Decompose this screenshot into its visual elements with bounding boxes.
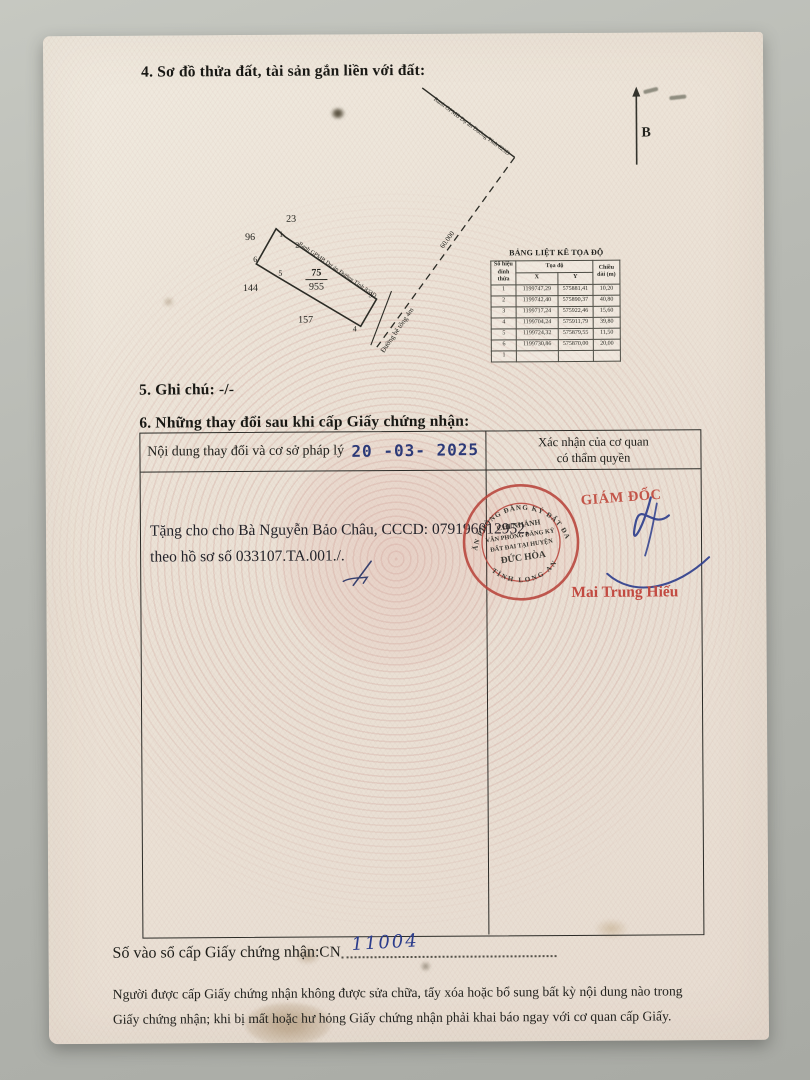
- cell-len: 15,60: [593, 306, 620, 317]
- cell-y: [558, 350, 594, 361]
- cell-x: 1199704,24: [516, 317, 557, 328]
- coordinate-table: Số hiệu đỉnh thửa Tọa độ Chiều dài (m) X…: [490, 260, 621, 362]
- registry-dotted-line: 11004: [341, 941, 556, 958]
- cell-x: 1199742,40: [516, 295, 557, 306]
- ink-smudge: [669, 94, 686, 100]
- changes-header-label: Nội dung thay đổi và cơ sở pháp lý: [147, 443, 344, 460]
- changes-table-header: Nội dung thay đổi và cơ sở pháp lý 20 -0…: [140, 430, 700, 472]
- cell-len: 11,50: [593, 328, 620, 339]
- north-arrow: B: [621, 84, 666, 170]
- road-label: Đường bê tông 4m: [379, 306, 416, 354]
- warning-line1: Người được cấp Giấy chứng nhận không đượ…: [113, 978, 683, 1006]
- neighbor-parcel-144: 144: [243, 283, 258, 294]
- registry-number-handwritten: 11004: [351, 930, 419, 955]
- photo-of-land-certificate-page: 4. Sơ đồ thửa đất, tài sản gắn liền với …: [0, 0, 810, 1080]
- col-coord-header: Tọa độ: [516, 260, 593, 272]
- registry-code: CN: [319, 944, 341, 960]
- confirm-header-line2: có thẩm quyền: [486, 449, 700, 467]
- cell-len: 40,80: [593, 295, 620, 306]
- section6-title: 6. Những thay đổi sau khi cấp Giấy chứng…: [139, 413, 469, 433]
- col-x-header: X: [516, 272, 557, 284]
- cell-y: 575922,46: [558, 306, 594, 317]
- cell-id: 6: [491, 339, 516, 350]
- cell-id: 1: [491, 350, 516, 361]
- cell-x: [517, 350, 558, 361]
- cell-id: 1: [491, 284, 516, 295]
- vertex-1: 1: [279, 230, 283, 239]
- cell-y: 575870,00: [558, 339, 594, 350]
- approver-name: Mai Trung Hiếu: [537, 583, 712, 602]
- cell-len: 20,00: [593, 339, 620, 350]
- cell-id: 2: [491, 295, 516, 306]
- paper-stain: [421, 962, 431, 971]
- coord-row: 61199730,86575870,0020,00: [491, 339, 620, 351]
- cell-id: 3: [491, 306, 516, 317]
- vertex-5: 5: [278, 269, 282, 278]
- coord-row: 11199747,29575881,4110,20: [491, 284, 620, 296]
- cell-len: 10,20: [593, 284, 620, 295]
- col-length-header: Chiều dài (m): [593, 260, 620, 284]
- coord-row: 1: [491, 350, 620, 362]
- cell-len: 39,80: [593, 317, 620, 328]
- neighbor-parcel-23: 23: [286, 214, 296, 225]
- coordinate-table-block: BẢNG LIỆT KÊ TỌA ĐỘ Số hiệu đỉnh thửa Tọ…: [490, 248, 623, 362]
- cell-y: 575881,41: [558, 284, 594, 295]
- boundary-label-top: Ranh GPMB Dự án Đường Tỉnh 823D: [432, 97, 511, 158]
- confirm-header-line1: Xác nhận của cơ quan: [486, 433, 700, 451]
- cell-len: [593, 350, 620, 361]
- registry-line: Số vào sổ cấp Giấy chứng nhận:CN11004: [112, 941, 556, 963]
- coord-row: 41199704,24575911,7939,80: [491, 317, 620, 329]
- cell-id: 5: [491, 328, 516, 339]
- warning-paragraph: Người được cấp Giấy chứng nhận không đượ…: [113, 978, 683, 1031]
- certificate-paper-page: 4. Sơ đồ thửa đất, tài sản gắn liền với …: [43, 32, 769, 1044]
- pen-mark: [341, 557, 381, 589]
- neighbor-parcel-157: 157: [298, 315, 313, 326]
- parcel-area: 955: [309, 281, 324, 292]
- neighbor-parcel-96: 96: [245, 232, 255, 243]
- cell-y: 575890,37: [558, 295, 594, 306]
- section5-note: 5. Ghi chú: -/-: [139, 381, 234, 400]
- cell-x: 1199730,86: [517, 339, 558, 350]
- cell-y: 575911,79: [558, 317, 594, 328]
- changes-header-confirm-cell: Xác nhận của cơ quan có thẩm quyền: [486, 430, 700, 469]
- cell-x: 1199717,24: [516, 306, 557, 317]
- vertex-4: 4: [353, 324, 357, 333]
- warning-line2: Giấy chứng nhận; khi bị mất hoặc hư hỏng…: [113, 1003, 683, 1031]
- coord-row: 21199742,40575890,3740,80: [491, 295, 620, 307]
- cell-x: 1199724,32: [516, 328, 557, 339]
- changes-table: Nội dung thay đổi và cơ sở pháp lý 20 -0…: [139, 429, 704, 938]
- north-arrow-head: [632, 87, 640, 97]
- cell-y: 575879,55: [558, 328, 594, 339]
- parcel-number: 75: [311, 268, 321, 279]
- col-vertex-header: Số hiệu đỉnh thửa: [491, 261, 516, 285]
- changes-table-body: Tặng cho cho Bà Nguyễn Bảo Châu, CCCD: 0…: [141, 469, 704, 936]
- date-stamp: 20 -03- 2025: [351, 439, 479, 460]
- cell-id: 4: [491, 317, 516, 328]
- coordinate-table-title: BẢNG LIỆT KÊ TỌA ĐỘ: [490, 248, 622, 258]
- vertex-6: 6: [253, 255, 257, 264]
- coord-row: 51199724,32575879,5511,50: [491, 328, 620, 340]
- cell-x: 1199747,29: [516, 284, 557, 295]
- changes-header-content-cell: Nội dung thay đổi và cơ sở pháp lý 20 -0…: [140, 432, 486, 472]
- paper-stain: [163, 297, 175, 306]
- north-label: B: [641, 125, 650, 140]
- col-y-header: Y: [557, 272, 593, 284]
- distance-label: 60.000: [438, 229, 456, 250]
- coord-row: 31199717,24575922,4615,60: [491, 306, 620, 318]
- registry-label: Số vào sổ cấp Giấy chứng nhận:: [112, 944, 319, 962]
